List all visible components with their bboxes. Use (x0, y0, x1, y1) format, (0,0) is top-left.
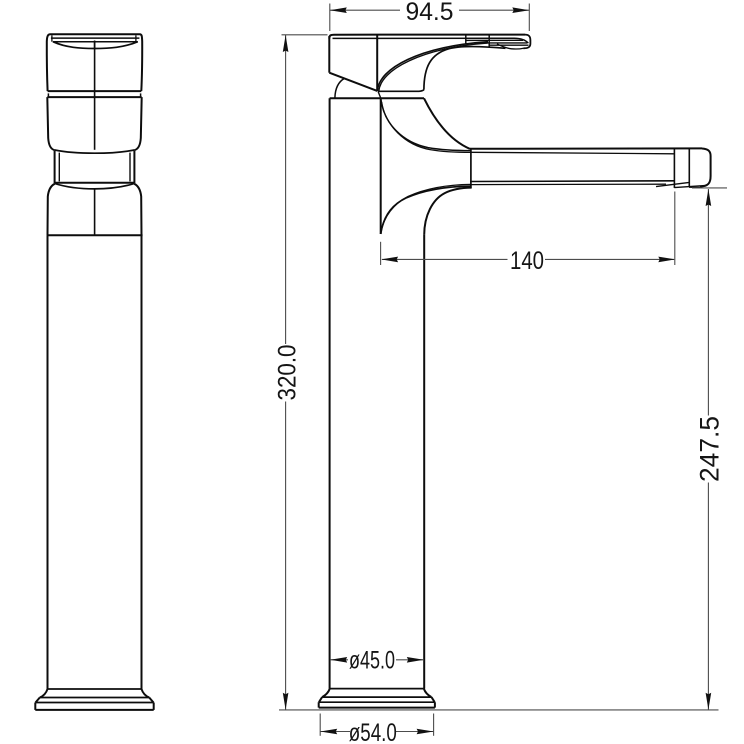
svg-text:140: 140 (510, 247, 544, 275)
svg-text:247.5: 247.5 (695, 416, 725, 482)
svg-text:94.5: 94.5 (406, 0, 454, 26)
svg-text:ø54.0: ø54.0 (349, 719, 397, 744)
svg-text:320.0: 320.0 (273, 345, 301, 401)
svg-text:ø45.0: ø45.0 (349, 647, 395, 675)
